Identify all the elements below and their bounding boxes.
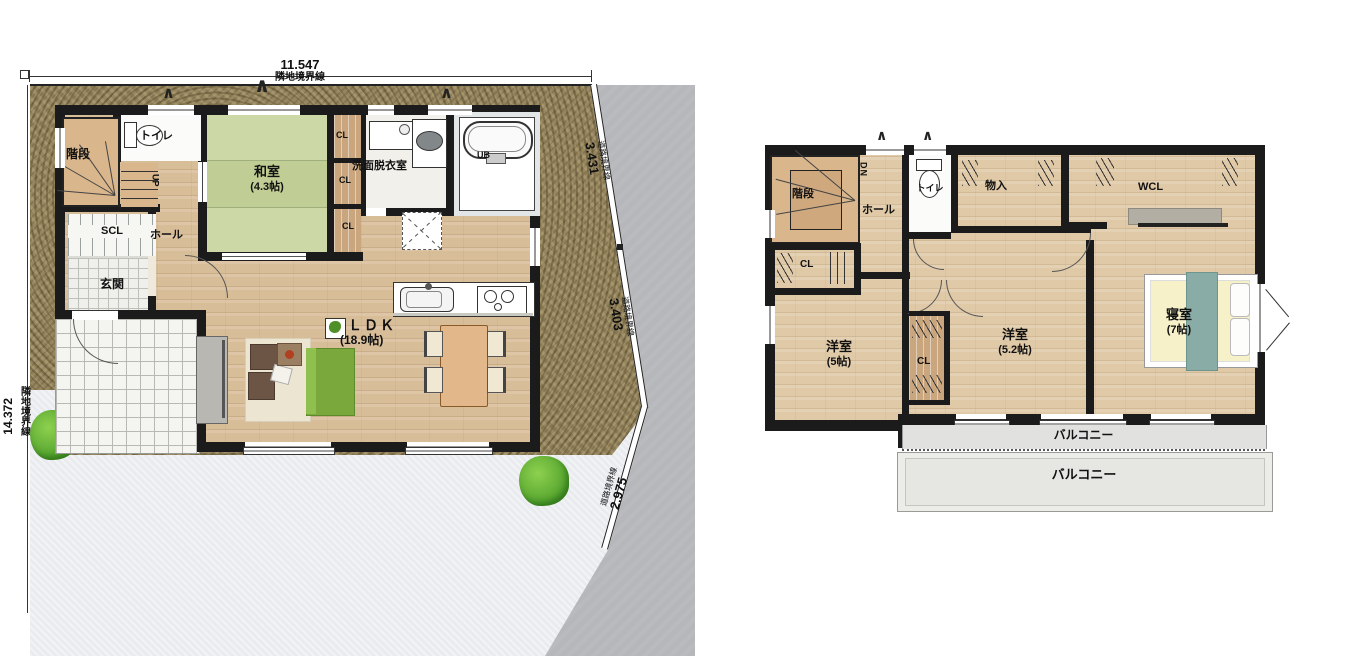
bathtub-inner-line	[468, 126, 526, 152]
wcl-hatch-2	[1222, 158, 1238, 186]
cl-b-hatch-2	[912, 375, 942, 393]
room2-label: 洋室	[950, 328, 1080, 343]
ldk-size-label: (18.9帖)	[340, 334, 383, 348]
awning-icon-2: ∧	[254, 76, 270, 96]
awning-icon-1: ∧	[162, 86, 175, 102]
floorplan-canvas: 11.547 隣地境界線 14.372 隣地境界線 道路境界線 3.431 道路…	[0, 0, 1361, 656]
stove-burner-1	[484, 290, 497, 303]
storage-hatch-2	[1038, 160, 1054, 186]
dining-table	[440, 325, 488, 407]
cl-a-hatch-1	[777, 253, 793, 283]
wall-storage-wcl	[1061, 155, 1069, 231]
living-table-item	[285, 350, 294, 359]
wall-wcl-bottom-part	[1061, 222, 1107, 229]
wall-cl-a-bottom	[765, 288, 861, 295]
washroom-label: 洗面脱衣室	[352, 160, 407, 173]
cl-a-label: CL	[800, 259, 813, 271]
scl-label: SCL	[68, 225, 156, 238]
right-door-swing-line1	[1265, 289, 1289, 317]
window-1f-washroom	[368, 105, 394, 115]
stove-burner-2	[501, 290, 514, 303]
dim-left-value: 14.372	[2, 398, 16, 435]
kitchen-sink-basin	[406, 291, 442, 308]
hall-2f-label: ホール	[862, 204, 895, 217]
window-2f-right-door	[1255, 284, 1265, 352]
washitsu-label: 和室	[207, 165, 327, 180]
dim-top-corner-marker	[20, 70, 29, 79]
balcony-outer-label: バルコニー	[897, 468, 1271, 483]
window-2f-left-2	[765, 306, 775, 344]
washitsu-size-label: (4.3帖)	[207, 181, 327, 194]
vanity-sink	[416, 131, 443, 151]
window-1f-right	[530, 228, 540, 266]
sofa-green-armrest	[306, 348, 316, 414]
room1-size-label: (5帖)	[789, 356, 889, 369]
entry-label: 玄関	[72, 278, 152, 292]
storage-hatch-1	[962, 160, 978, 186]
awning-icon-5: ∧	[922, 128, 933, 142]
wall-toilet-2f-bottom	[909, 232, 951, 239]
wall-bath-left	[446, 110, 454, 216]
bath-label: UB	[477, 150, 490, 160]
tree-right	[519, 456, 569, 506]
dim-top-value: 11.547	[235, 58, 365, 73]
window-1f-south-2-sash	[405, 447, 493, 455]
balcony-divider-dotted	[902, 449, 1265, 451]
cl-a-hatch-2	[830, 252, 848, 284]
balcony-inner-label: バルコニー	[902, 429, 1265, 443]
dining-chair-2	[424, 367, 443, 393]
stairs-1f-up-label: UP	[150, 174, 160, 187]
kitchen-counter-edge	[393, 313, 533, 316]
closet-divider-2	[334, 204, 361, 209]
ldk-label: ＬＤＫ	[348, 317, 396, 333]
window-1f-south-1-sash	[243, 447, 335, 455]
dim-top-tick-right	[591, 70, 592, 82]
cl-b-hatch-1	[912, 320, 942, 338]
wall-room2-master	[1086, 240, 1094, 414]
tv-screen	[222, 340, 225, 418]
wall-2f-bottom-left	[765, 420, 911, 431]
wall-toilet-storage	[951, 155, 958, 233]
awning-icon-4: ∧	[876, 128, 887, 142]
room1-label: 洋室	[789, 340, 889, 355]
toilet-2f-label: トイレ	[907, 183, 953, 193]
awning-icon-3: ∧	[440, 86, 453, 102]
cl-bottom-label: CL	[342, 221, 354, 231]
dim-left-line	[27, 85, 28, 613]
opening-washroom-door	[366, 208, 386, 216]
window-2f-top-1	[866, 145, 904, 155]
wcl-label: WCL	[1138, 181, 1163, 194]
cl-top-label: CL	[336, 130, 348, 140]
washitsu-sliding-door	[222, 253, 306, 260]
kitchen-faucet	[425, 283, 432, 290]
wall-cl-b-bottom	[909, 400, 947, 405]
bedroom-label: 寝室	[1146, 308, 1212, 323]
bed-pillow-1	[1230, 283, 1250, 317]
window-1f-left	[55, 128, 65, 168]
washing-machine-drum	[399, 124, 410, 135]
window-1f-washitsu	[228, 105, 300, 115]
hall-1f-label: ホール	[150, 229, 183, 242]
wall-hall-2f-bottom	[854, 272, 910, 279]
dim-left-label: 隣地境界線	[18, 386, 30, 436]
bed-pillow-2	[1230, 318, 1250, 356]
storage-label: 物入	[985, 180, 1007, 193]
window-2f-left-1	[765, 210, 775, 238]
wcl-hanger-rod	[1138, 223, 1228, 227]
window-2f-top-2	[914, 145, 946, 155]
cl-b-label: CL	[917, 356, 930, 368]
opening-washitsu-side	[198, 162, 207, 202]
stairs-2f-dn-label: DN	[858, 162, 868, 177]
wcl-hatch-1	[1096, 158, 1114, 186]
window-1f-bath	[428, 105, 472, 115]
toilet-1f-label: トイレ	[140, 130, 173, 143]
room2-size-label: (5.2帖)	[950, 344, 1080, 357]
stairs-2f-label: 階段	[792, 188, 814, 201]
dining-chair-1	[424, 331, 443, 357]
bedroom-size-label: (7帖)	[1146, 324, 1212, 337]
stairs-1f-label: 階段	[66, 148, 90, 162]
wall-cl-b-right	[944, 311, 950, 405]
wall-closet-left	[327, 110, 334, 260]
wall-2f-top	[765, 145, 1265, 155]
dining-chair-3	[487, 331, 506, 357]
wall-cl-b-top	[909, 311, 947, 316]
stove-burner-3	[494, 303, 502, 311]
cl-mid-label: CL	[339, 175, 351, 185]
dining-chair-4	[487, 367, 506, 393]
wall-cl-a-top	[765, 243, 861, 250]
dim-top-tick-left	[29, 70, 30, 82]
boundary-joint-marker	[617, 244, 623, 250]
site-lot-top-edge	[30, 84, 592, 86]
wall-cl-a-right	[854, 243, 861, 295]
window-1f-toilet	[148, 105, 194, 115]
right-door-swing-line2	[1266, 322, 1290, 350]
